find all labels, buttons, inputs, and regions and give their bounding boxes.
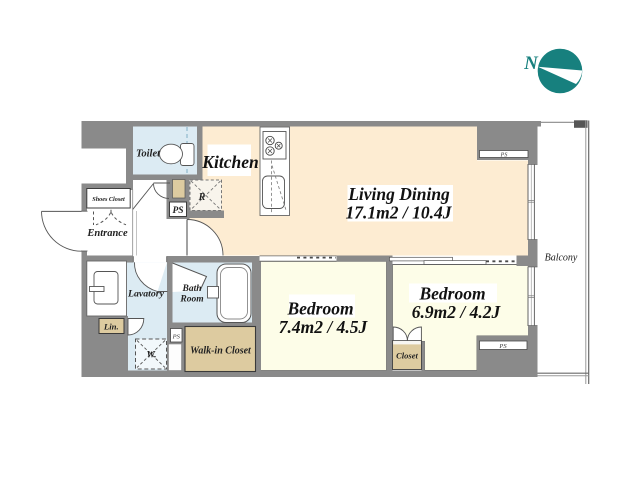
svg-text:Shoes Closet: Shoes Closet xyxy=(92,196,125,203)
svg-text:W.: W. xyxy=(146,351,156,361)
svg-text:Lavatory: Lavatory xyxy=(127,289,165,300)
svg-text:N: N xyxy=(523,53,539,74)
svg-text:Closet: Closet xyxy=(396,351,418,361)
svg-text:Walk-in Closet: Walk-in Closet xyxy=(190,346,252,357)
svg-text:Entrance: Entrance xyxy=(86,228,128,239)
svg-text:Balcony: Balcony xyxy=(545,253,578,264)
svg-text:PS: PS xyxy=(172,206,183,216)
svg-text:17.1m2 / 10.4J: 17.1m2 / 10.4J xyxy=(346,203,453,223)
svg-text:PS: PS xyxy=(172,334,181,341)
svg-text:Bedroom: Bedroom xyxy=(286,298,353,318)
svg-text:Bedroom: Bedroom xyxy=(418,284,485,304)
svg-text:R: R xyxy=(198,192,206,203)
svg-text:7.4m2 / 4.5J: 7.4m2 / 4.5J xyxy=(279,317,369,337)
svg-text:Bath: Bath xyxy=(181,284,201,294)
svg-text:6.9m2 / 4.2J: 6.9m2 / 4.2J xyxy=(412,302,502,322)
svg-text:Room: Room xyxy=(179,295,203,305)
svg-text:Toilet: Toilet xyxy=(136,148,161,159)
svg-text:Living Dining: Living Dining xyxy=(347,184,450,204)
svg-text:PS: PS xyxy=(500,152,508,158)
svg-text:Lin.: Lin. xyxy=(103,322,119,332)
svg-text:Kitchen: Kitchen xyxy=(201,152,258,172)
svg-text:PS: PS xyxy=(498,343,507,350)
